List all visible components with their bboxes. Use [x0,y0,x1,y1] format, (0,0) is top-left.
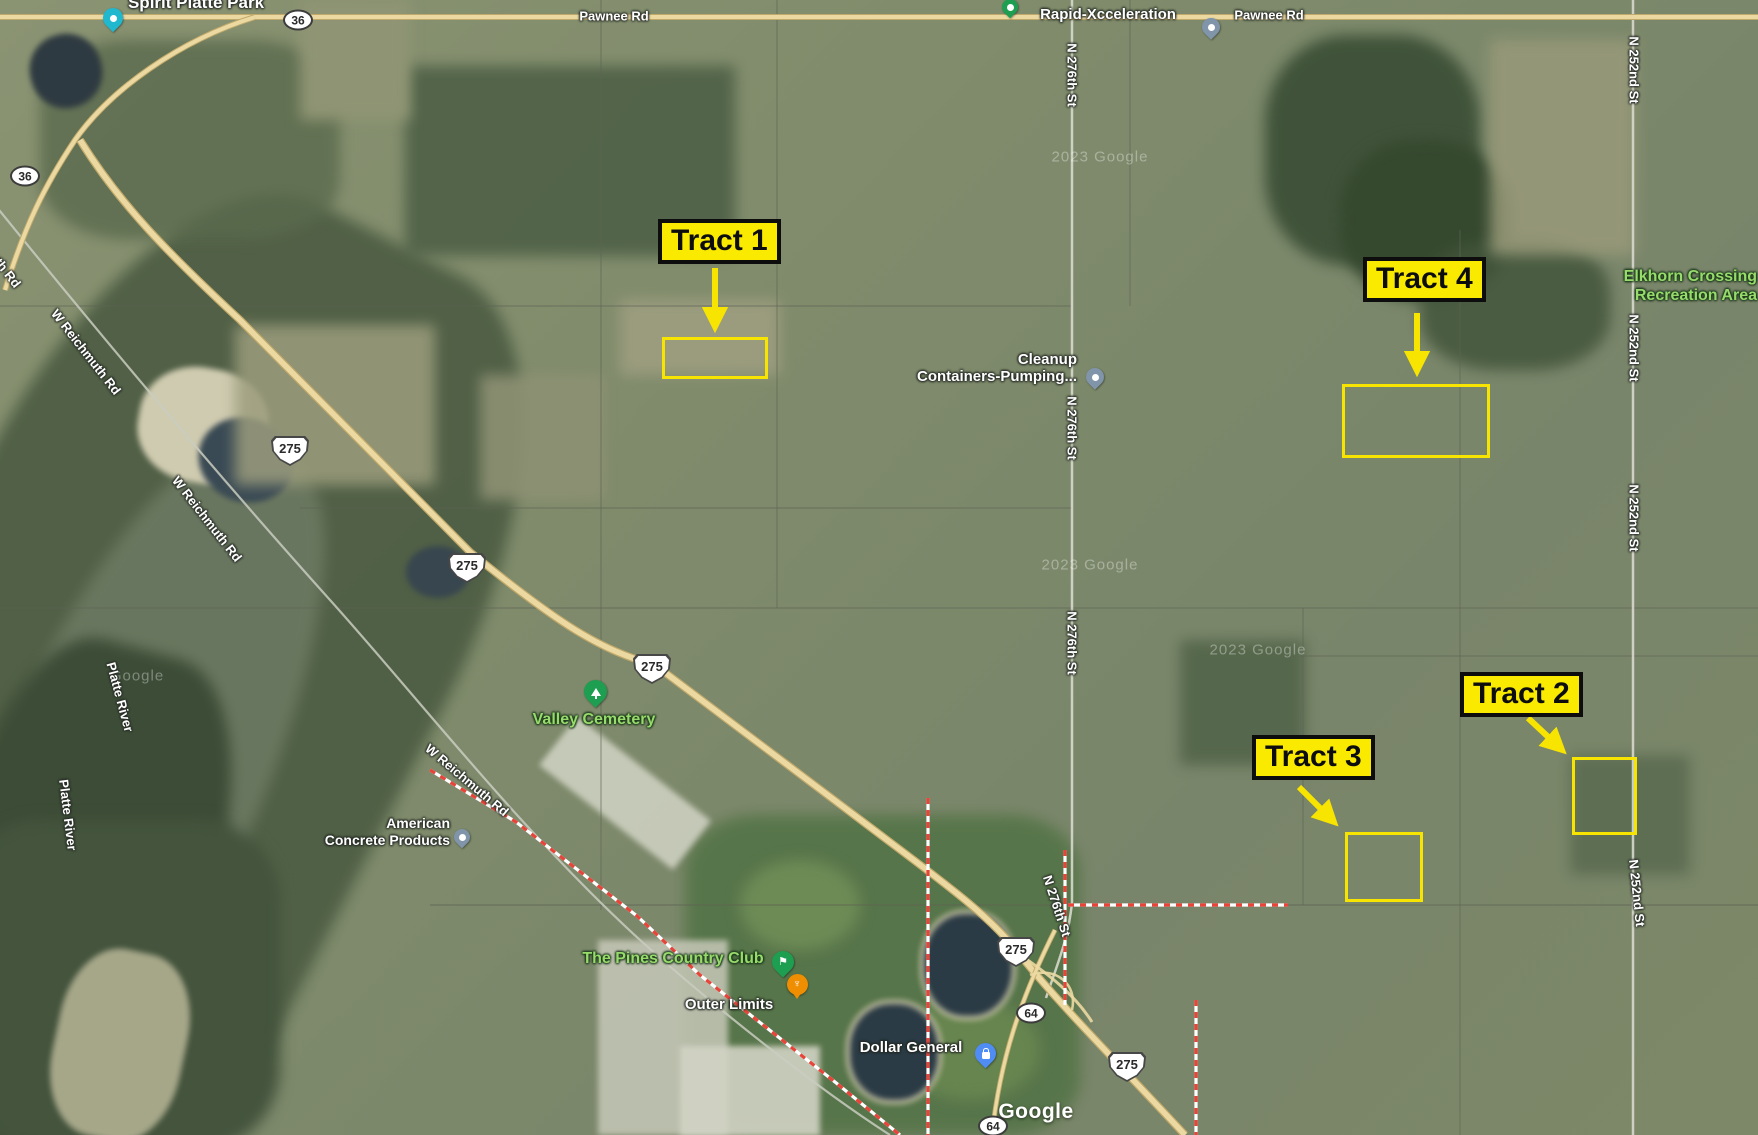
tract-arrows-layer [0,0,1758,1135]
tract-arrow [1528,718,1560,748]
tract-annotation-label: Tract 3 [1252,735,1375,780]
tract-annotation-label: Tract 2 [1460,672,1583,717]
tract-arrow [1299,787,1332,820]
tract-annotation-label: Tract 4 [1363,257,1486,302]
tract-annotation-label: Tract 1 [658,219,781,264]
satellite-map[interactable]: 2023 Google2023 Google2023 GoogleGoogleP… [0,0,1758,1135]
